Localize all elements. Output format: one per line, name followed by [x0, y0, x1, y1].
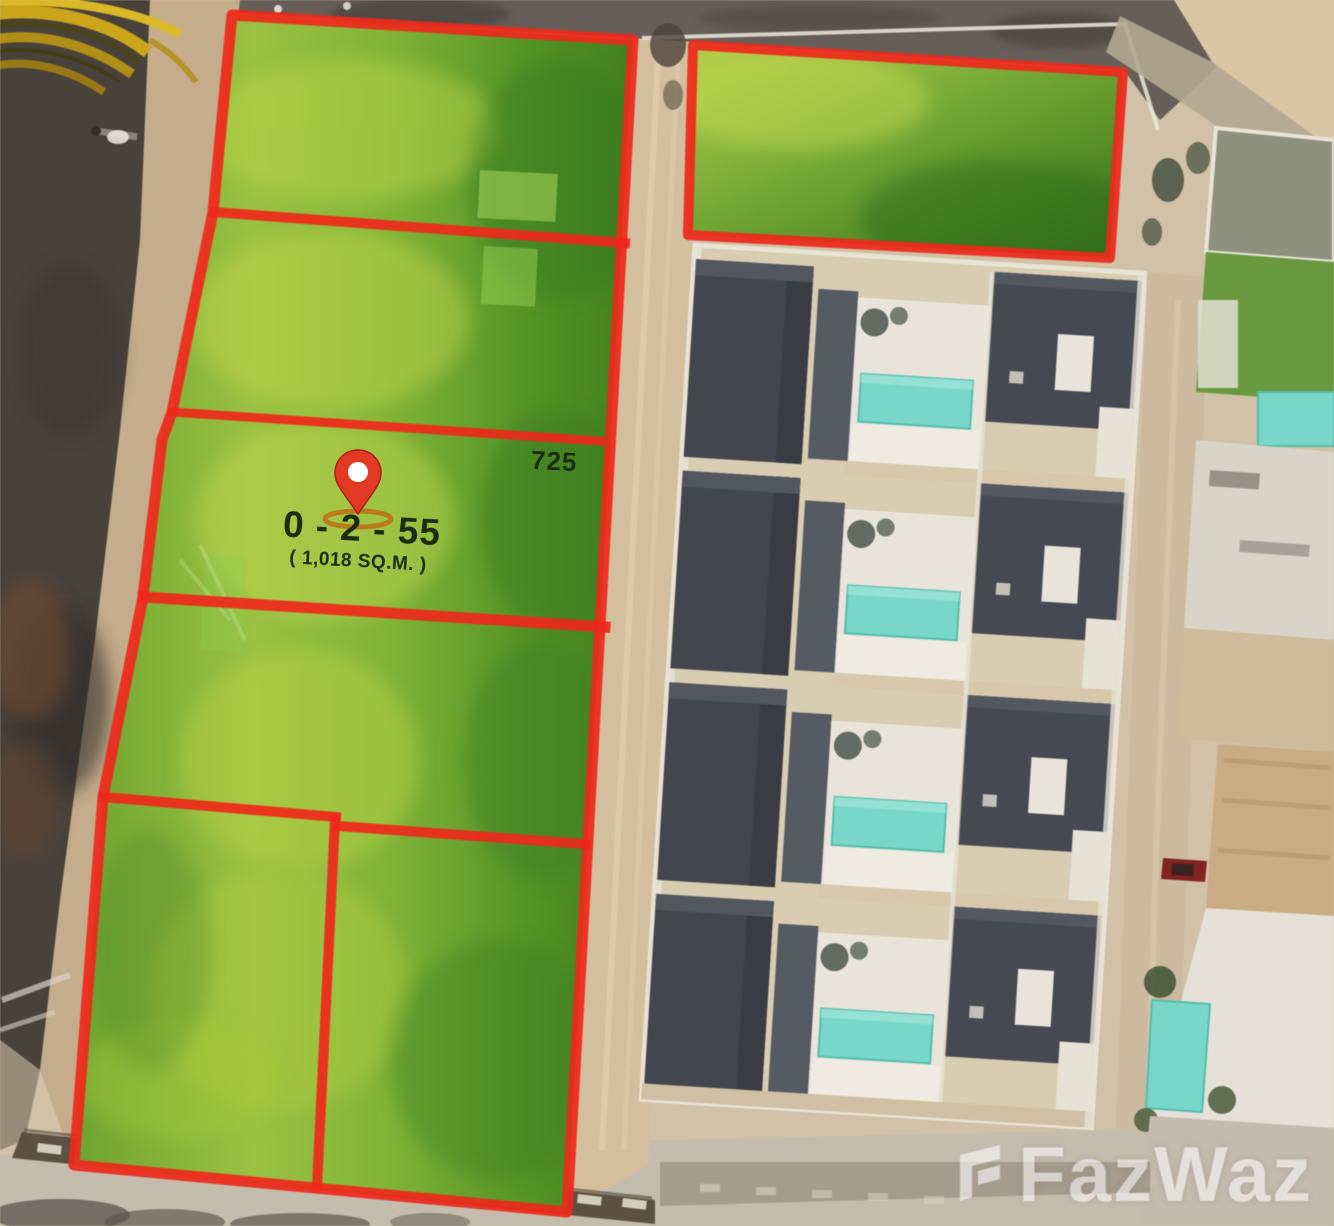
satellite-map — [0, 0, 1334, 1226]
parcel-number-label: 725 — [530, 445, 578, 478]
satellite-plot-screenshot: 0 - 2 - 55 ( 1,018 SQ.M. ) 725 FazWaz — [0, 0, 1334, 1226]
villa-compound — [641, 245, 1145, 1128]
watermark: FazWaz — [954, 1134, 1313, 1214]
watermark-text: FazWaz — [1018, 1134, 1313, 1214]
fazwaz-logo-icon — [954, 1141, 1002, 1207]
